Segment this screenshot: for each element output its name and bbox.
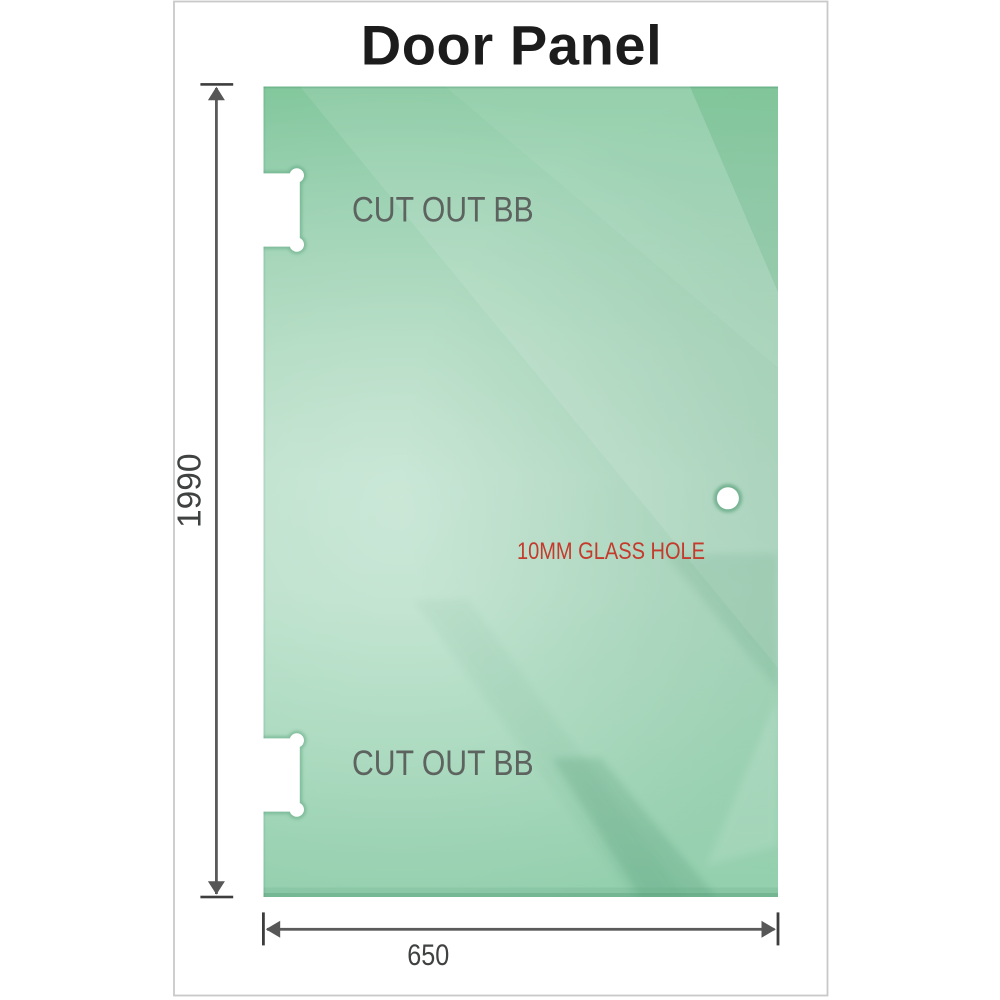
svg-text:10MM GLASS HOLE: 10MM GLASS HOLE — [517, 538, 705, 565]
svg-text:Door Panel: Door Panel — [361, 14, 663, 77]
svg-text:650: 650 — [407, 939, 449, 972]
svg-text:CUT OUT BB: CUT OUT BB — [352, 191, 534, 230]
svg-text:1990: 1990 — [172, 453, 209, 528]
svg-text:CUT OUT BB: CUT OUT BB — [352, 744, 534, 783]
